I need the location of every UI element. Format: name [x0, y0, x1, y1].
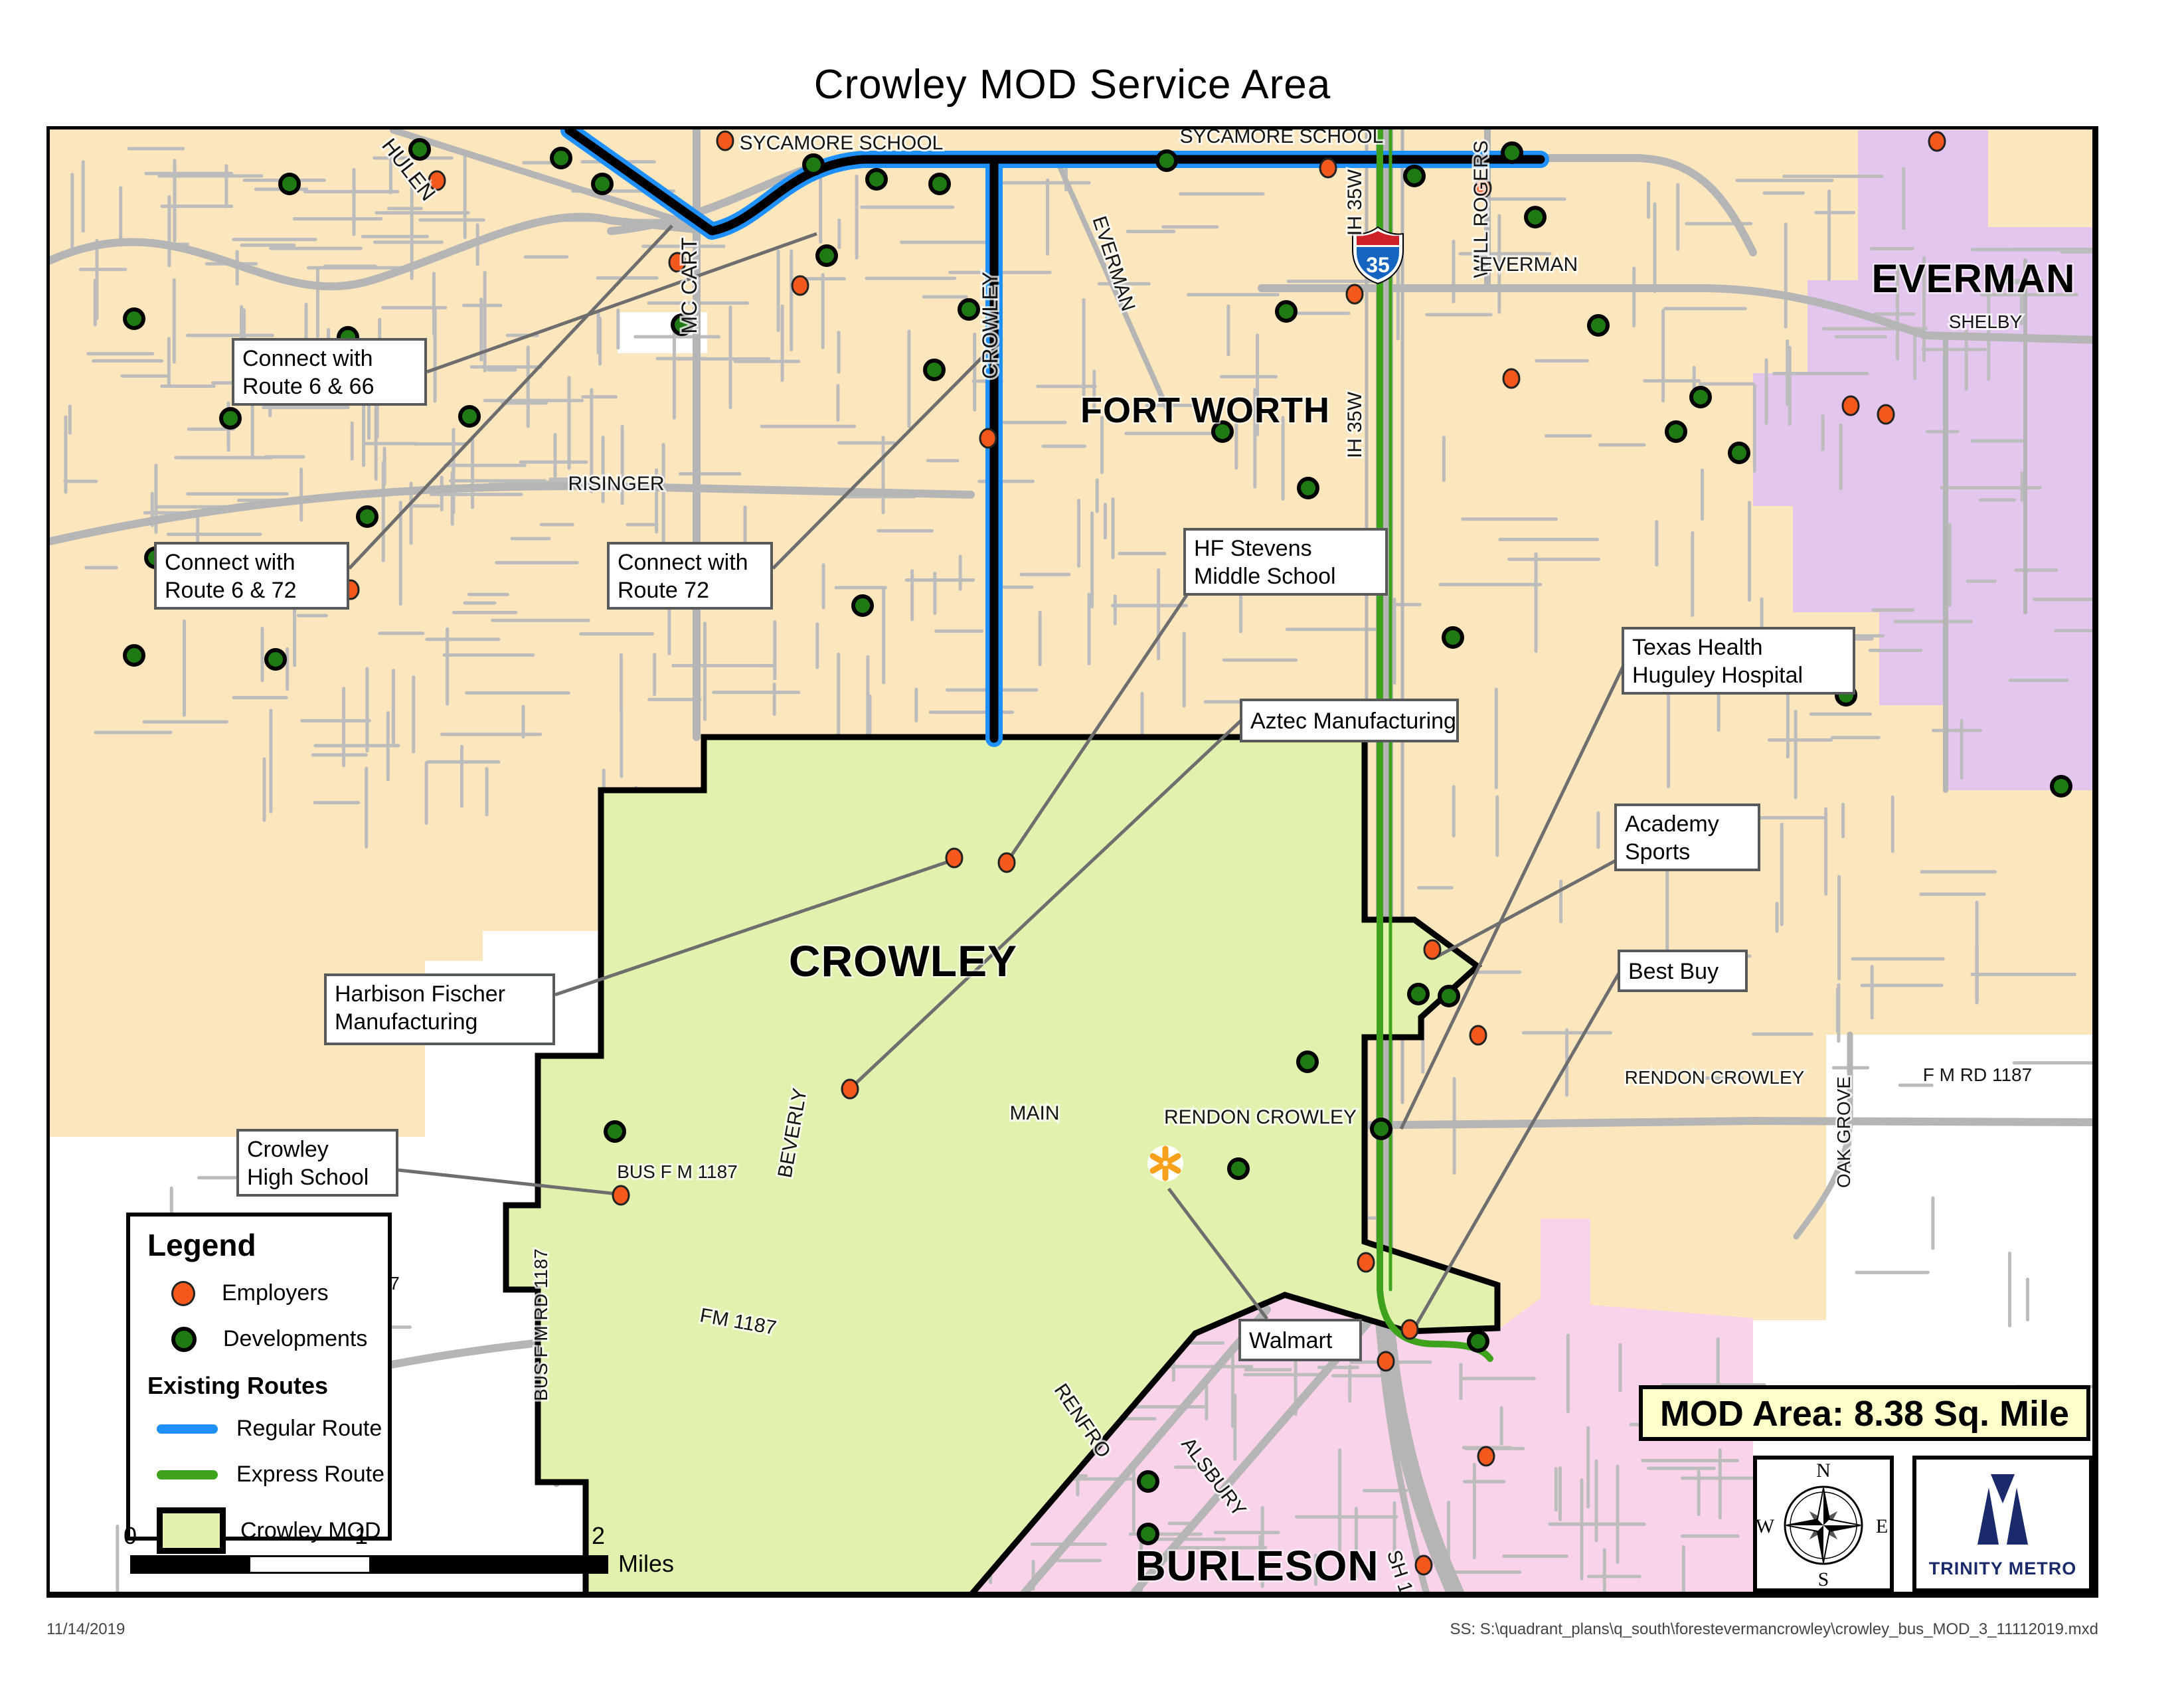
development-dot	[1730, 444, 1748, 462]
development-dot	[125, 309, 143, 328]
employer-dot	[980, 429, 996, 448]
development-dot	[867, 170, 886, 189]
callout: Best Buy	[1619, 951, 1746, 991]
walmart-spark-ray	[1170, 1166, 1178, 1171]
employer-dot-icon	[171, 1281, 195, 1306]
employer-dot	[1416, 1556, 1432, 1574]
road-label: IH 35W	[1344, 169, 1366, 236]
express-route-line-icon	[157, 1470, 218, 1479]
development-dot	[1298, 1053, 1317, 1071]
scale-tick-0: 0	[124, 1522, 137, 1550]
trinity-metro-logo-icon	[1916, 1460, 2089, 1559]
development-dot	[2052, 777, 2070, 796]
callout: Harbison FischerManufacturing	[325, 975, 554, 1044]
development-dot	[1139, 1472, 1157, 1491]
development-dot	[960, 300, 978, 319]
development-dot	[1299, 479, 1317, 497]
road-label: SHELBY	[1949, 311, 2023, 332]
legend-item-employers: Employers	[157, 1280, 388, 1306]
road-label: F M RD 1187	[1923, 1064, 2032, 1085]
callout-text: Best Buy	[1628, 959, 1719, 984]
development-dot	[552, 149, 570, 167]
city-label: BURLESON	[1135, 1542, 1379, 1590]
scale-unit-label: Miles	[618, 1550, 674, 1578]
callout: HF StevensMiddle School	[1185, 529, 1386, 594]
development-dot	[358, 507, 377, 526]
development-dot	[1667, 422, 1685, 441]
development-dot	[1444, 628, 1462, 647]
development-dot	[1469, 1332, 1487, 1351]
development-dot	[817, 246, 836, 265]
employer-dot	[717, 131, 733, 150]
callout: CrowleyHigh School	[238, 1130, 397, 1195]
legend-subtitle-existing-routes: Existing Routes	[147, 1372, 388, 1400]
employer-dot	[1470, 1026, 1486, 1045]
callout: Connect withRoute 72	[608, 543, 772, 608]
road-label: MC CART	[677, 237, 701, 333]
city-label: EVERMAN	[1871, 256, 2075, 301]
development-dot	[1440, 987, 1458, 1005]
employer-dot	[1929, 132, 1945, 151]
employer-dot	[792, 276, 808, 295]
compass-rose-icon: N E S W	[1757, 1460, 1890, 1588]
development-dot	[1405, 167, 1424, 185]
legend-item-developments: Developments	[157, 1326, 388, 1352]
development-dot	[593, 175, 612, 193]
employer-dot	[842, 1080, 858, 1098]
employer-dot	[999, 853, 1015, 872]
walmart-spark-ray	[1170, 1156, 1178, 1161]
development-dot	[1277, 302, 1296, 321]
road-label: EVERMAN	[1479, 254, 1578, 276]
legend-item-label: Regular Route	[236, 1416, 382, 1442]
employer-dot	[1843, 396, 1859, 415]
legend-title: Legend	[147, 1227, 388, 1263]
scale-tick-1: 1	[355, 1522, 368, 1550]
legend-item-label: Express Route	[236, 1462, 384, 1487]
trinity-metro-wordmark: TRINITY METRO	[1916, 1559, 2089, 1579]
scale-bar-segments	[130, 1555, 608, 1574]
employer-dot	[1402, 1320, 1418, 1339]
footer-source-path: SS: S:\quadrant_plans\q_south\forestever…	[1450, 1620, 2098, 1639]
footer-date: 11/14/2019	[46, 1620, 125, 1639]
callout-text: Aztec Manufacturing	[1250, 709, 1456, 734]
employer-dot	[1347, 285, 1363, 303]
employer-dot	[1424, 940, 1440, 959]
development-dot	[1139, 1525, 1157, 1543]
scale-segment	[369, 1557, 606, 1572]
development-dot	[280, 175, 299, 193]
development-dot	[266, 650, 285, 669]
callout: Connect withRoute 6 & 66	[233, 339, 426, 404]
road-label: SYCAMORE SCHOOL	[740, 132, 944, 154]
employer-dot	[1320, 159, 1336, 177]
development-dot	[606, 1122, 624, 1141]
scale-segment	[250, 1557, 369, 1572]
legend-item-regular-route: Regular Route	[157, 1416, 388, 1442]
road-label: MAIN	[1010, 1102, 1060, 1124]
scale-bar: 0 1 2 Miles	[124, 1522, 721, 1582]
development-dot	[460, 407, 479, 426]
development-dot-icon	[171, 1327, 197, 1352]
scale-tick-2: 2	[592, 1522, 605, 1550]
road-label: IH 35W	[1344, 391, 1366, 458]
legend-panel: Legend Employers Developments Existing R…	[126, 1213, 392, 1541]
road-label: BUS F M 1187	[617, 1161, 738, 1182]
development-dot	[1526, 208, 1545, 226]
employer-dot	[1358, 1253, 1374, 1272]
scale-segment	[132, 1557, 250, 1572]
road-label: RENDON CROWLEY	[1625, 1067, 1805, 1088]
walmart-spark-ray	[1153, 1156, 1161, 1161]
employer-dot	[1503, 369, 1519, 388]
walmart-spark-icon	[1147, 1145, 1183, 1181]
legend-item-express-route: Express Route	[157, 1462, 388, 1487]
development-dot	[1157, 151, 1176, 170]
development-dot	[930, 175, 949, 193]
trinity-metro-box: TRINITY METRO	[1912, 1456, 2093, 1592]
callout: Texas HealthHuguley Hospital	[1623, 628, 1854, 693]
map-title: Crowley MOD Service Area	[46, 61, 2098, 108]
road-label: OAK GROVE	[1833, 1076, 1854, 1188]
callout: AcademySports	[1616, 805, 1759, 870]
development-dot	[925, 361, 944, 379]
development-dot	[1691, 388, 1710, 406]
employer-dot	[1478, 1447, 1494, 1466]
callout-text: Walmart	[1249, 1328, 1333, 1353]
callout: Aztec Manufacturing	[1241, 700, 1458, 741]
shield-route-number: 35	[1366, 253, 1390, 277]
development-dot	[1229, 1159, 1248, 1178]
legend-item-label: Employers	[222, 1280, 329, 1306]
employer-dot	[613, 1186, 629, 1205]
city-label: FORT WORTH	[1080, 390, 1330, 430]
compass-south-label: S	[1818, 1568, 1829, 1588]
employer-dot	[1878, 405, 1894, 424]
employer-dot	[946, 849, 962, 867]
development-dot	[804, 155, 823, 174]
development-dot	[125, 646, 143, 665]
development-dot	[221, 409, 240, 428]
mod-area-infobox: MOD Area: 8.38 Sq. Mile	[1639, 1385, 2090, 1441]
road-label: BUS F M RD 1187	[531, 1248, 551, 1401]
legend-item-label: Developments	[223, 1326, 367, 1352]
city-label: CROWLEY	[789, 936, 1017, 985]
development-dot	[853, 596, 872, 615]
road-label: CROWLEY	[978, 272, 1002, 379]
development-dot	[1372, 1120, 1390, 1138]
callout: Walmart	[1240, 1320, 1361, 1360]
development-dot	[1589, 316, 1608, 335]
road-label: RISINGER	[568, 473, 664, 495]
road-label: RENDON CROWLEY	[1164, 1106, 1357, 1128]
compass-east-label: E	[1876, 1515, 1888, 1537]
compass-box: N E S W	[1753, 1456, 1894, 1592]
page: { "title": "Crowley MOD Service Area", "…	[0, 0, 2184, 1688]
compass-west-label: W	[1757, 1515, 1775, 1537]
development-dot	[1503, 143, 1521, 162]
walmart-spark-ray	[1153, 1166, 1161, 1171]
employer-dot	[1378, 1352, 1394, 1371]
development-dot	[1409, 985, 1428, 1003]
regular-route-line-icon	[157, 1424, 218, 1434]
callout: Connect withRoute 6 & 72	[155, 543, 348, 608]
compass-north-label: N	[1816, 1460, 1831, 1481]
